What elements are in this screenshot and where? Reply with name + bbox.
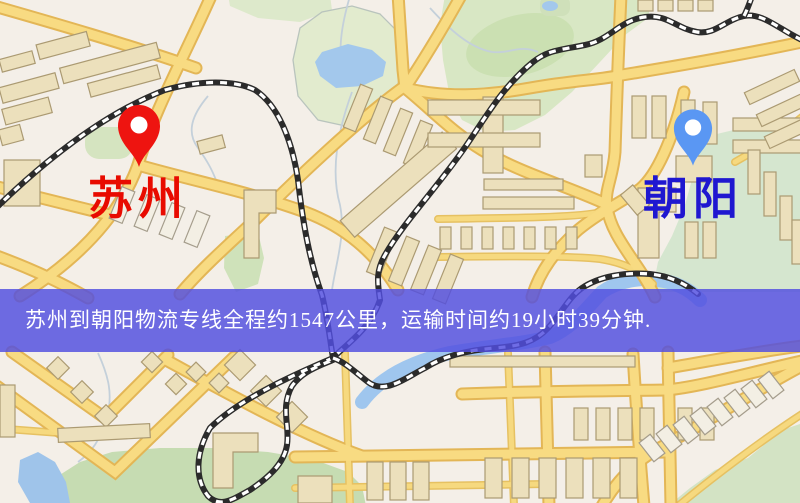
- route-info-banner: 苏州到朝阳物流专线全程约1547公里，运输时间约19小时39分钟.: [0, 289, 800, 352]
- origin-pin-icon[interactable]: [117, 104, 161, 168]
- map-background: [0, 0, 800, 503]
- route-info-text: 苏州到朝阳物流专线全程约1547公里，运输时间约19小时39分钟.: [25, 308, 651, 332]
- destination-city-label: 朝阳: [643, 177, 743, 222]
- origin-city-label: 苏州: [88, 177, 188, 222]
- destination-pin-icon[interactable]: [673, 108, 713, 167]
- map-canvas[interactable]: 苏州到朝阳物流专线全程约1547公里，运输时间约19小时39分钟. 苏州 朝阳: [0, 0, 800, 503]
